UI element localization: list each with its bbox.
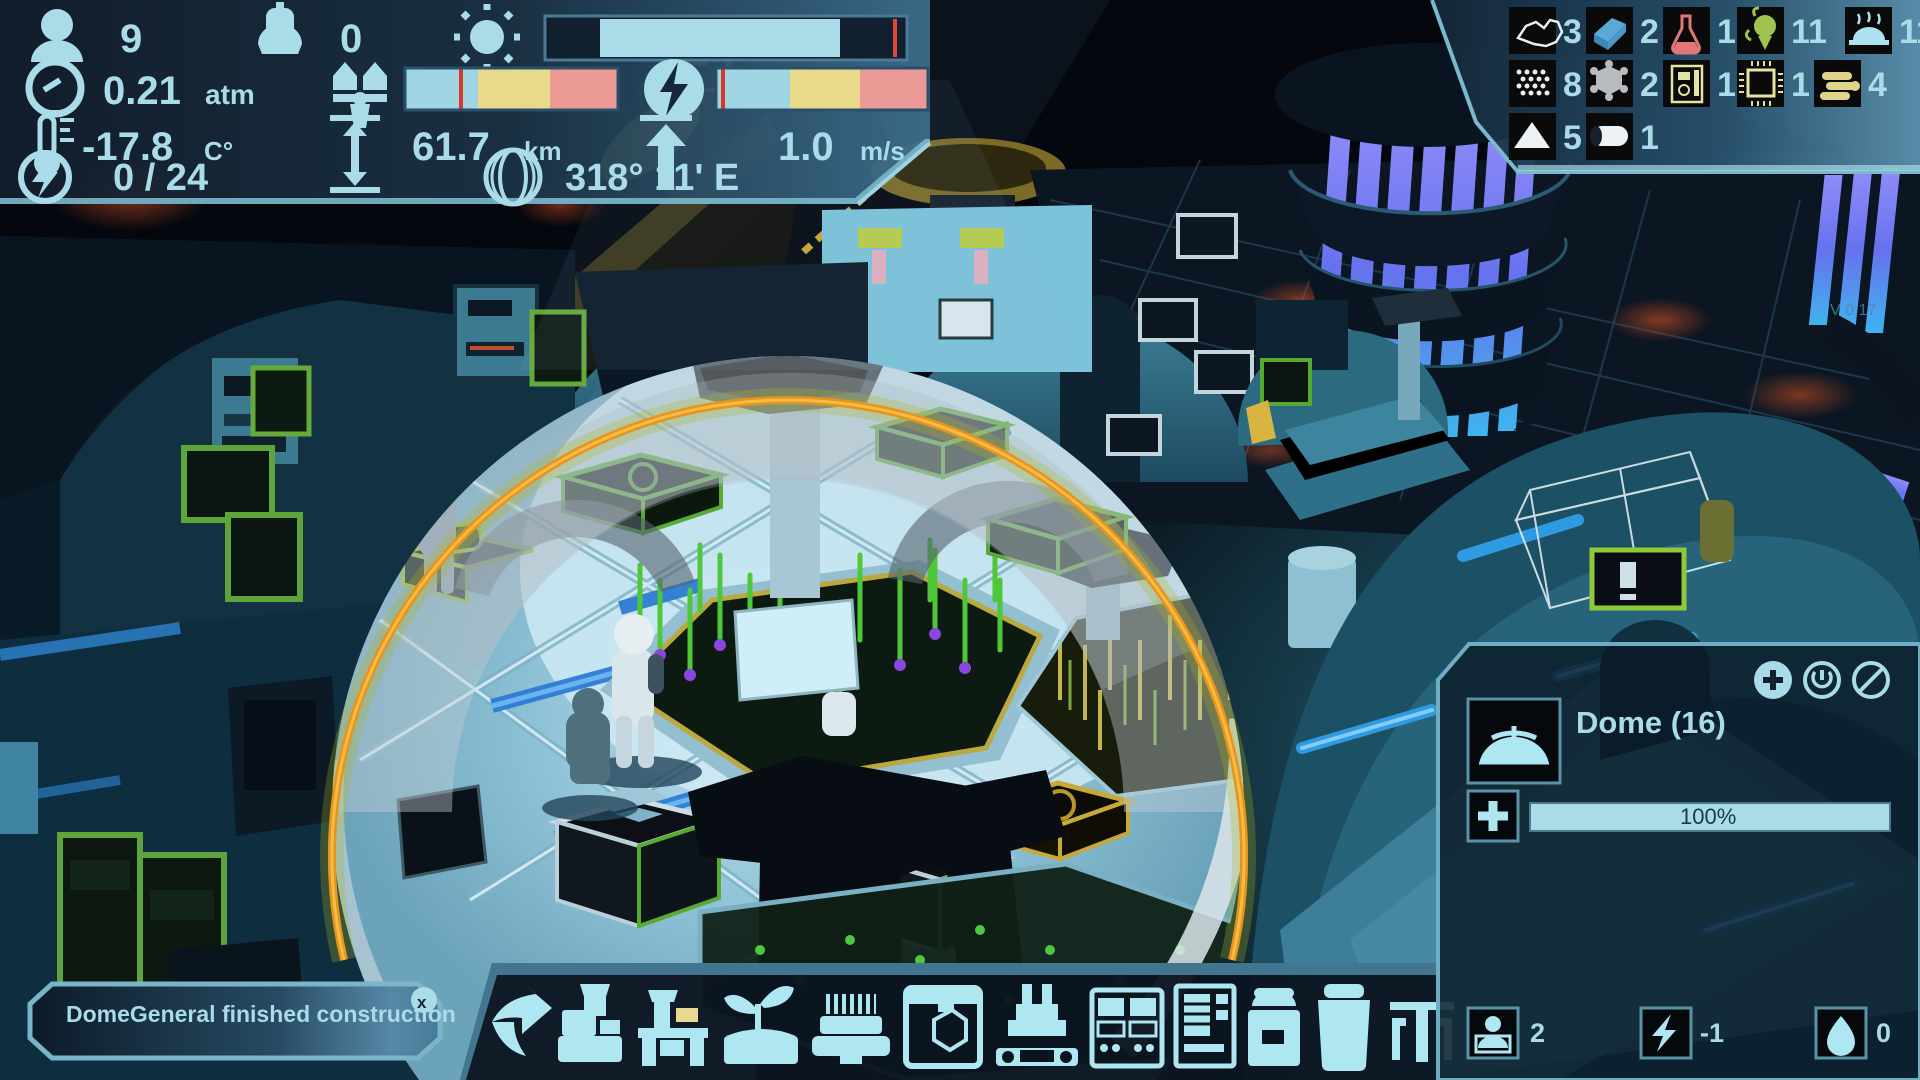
svg-text:-1: -1 [1700, 1018, 1724, 1048]
svg-text:C°: C° [204, 136, 233, 166]
svg-text:1: 1 [1791, 66, 1810, 104]
svg-text:3: 3 [1563, 13, 1582, 51]
svg-text:9: 9 [120, 17, 142, 61]
svg-text:11: 11 [1791, 13, 1827, 51]
svg-text:2: 2 [1640, 13, 1659, 51]
svg-text:x: x [417, 993, 427, 1012]
svg-text:8: 8 [1563, 66, 1582, 104]
svg-text:1.0: 1.0 [778, 125, 834, 169]
svg-text:2: 2 [1530, 1018, 1545, 1048]
svg-text:0.21: 0.21 [103, 69, 181, 113]
svg-text:0: 0 [1876, 1018, 1891, 1048]
svg-text:61.7: 61.7 [412, 125, 490, 169]
svg-text:2: 2 [1640, 66, 1659, 104]
svg-text:11: 11 [1899, 13, 1920, 51]
svg-text:atm: atm [205, 79, 255, 110]
svg-text:1: 1 [1717, 13, 1736, 51]
svg-text:0 / 24: 0 / 24 [113, 157, 208, 199]
svg-text:100%: 100% [1680, 804, 1736, 829]
svg-text:5: 5 [1563, 119, 1582, 157]
svg-text:DomeGeneral finished construct: DomeGeneral finished construction [66, 1001, 456, 1027]
svg-text:Dome (16): Dome (16) [1576, 705, 1726, 740]
svg-text:m/s: m/s [860, 136, 905, 166]
svg-text:1: 1 [1640, 119, 1659, 157]
svg-text:0: 0 [340, 17, 362, 61]
svg-text:4: 4 [1868, 66, 1887, 104]
svg-text:1: 1 [1717, 66, 1736, 104]
svg-text:318° 11' E: 318° 11' E [565, 157, 739, 199]
svg-text:V 0.17: V 0.17 [1830, 302, 1876, 319]
